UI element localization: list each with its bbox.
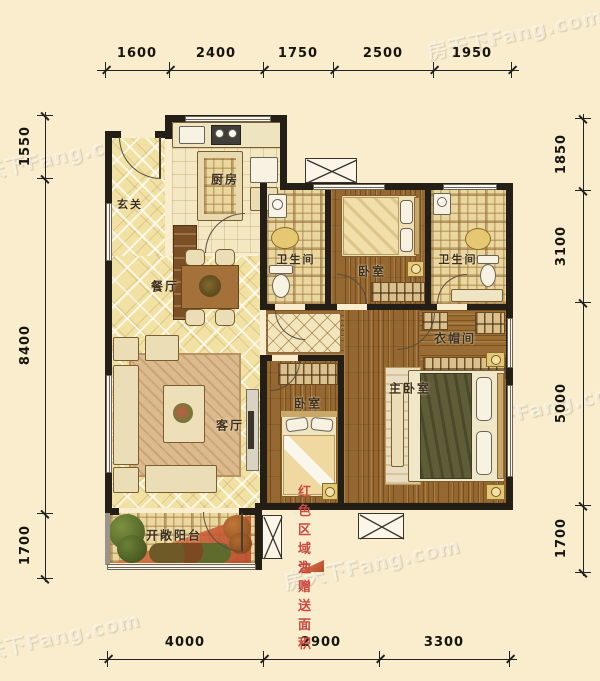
- washer-door: [437, 197, 447, 207]
- window: [106, 203, 112, 261]
- toilet-tank: [477, 255, 499, 264]
- table-centerpiece: [199, 275, 221, 297]
- room-label-living: 客厅: [216, 417, 244, 434]
- dim-label: 1950: [437, 46, 507, 61]
- dim-label: 1750: [263, 46, 333, 61]
- wall-segment: [255, 508, 262, 570]
- tick: [37, 513, 53, 514]
- bed-blanket: [343, 197, 399, 255]
- wall-segment: [260, 357, 267, 503]
- dim-label: 1600: [102, 46, 172, 61]
- room-label-kitchen: 厨房: [211, 171, 239, 188]
- tick: [333, 62, 334, 78]
- tick: [575, 118, 591, 119]
- sofa: [145, 465, 217, 493]
- room-label-balcony: 开敞阳台: [146, 527, 202, 544]
- wall-segment: [260, 183, 267, 310]
- shaft-x-icon: [306, 159, 358, 184]
- balcony-plants: [149, 543, 231, 563]
- sofa: [113, 365, 139, 465]
- wardrobe: [371, 282, 425, 302]
- wall-segment: [255, 503, 513, 510]
- room-label-bath1: 卫生间: [277, 251, 316, 267]
- headboard: [281, 411, 337, 417]
- wall-segment: [338, 355, 344, 505]
- window: [313, 184, 385, 190]
- tick: [433, 62, 434, 78]
- tick: [37, 578, 53, 579]
- tick: [575, 572, 591, 573]
- nightstand: [486, 352, 505, 367]
- toilet: [272, 274, 290, 298]
- wardrobe: [475, 312, 505, 334]
- room-label-bedroom1: 卧室: [358, 263, 386, 280]
- armchair: [113, 337, 139, 361]
- window: [443, 184, 497, 190]
- tick: [509, 651, 510, 667]
- floorplan-page: 房天下Fang.com 房天下Fang.com 房天下Fang.com 房天下F…: [0, 0, 600, 681]
- pillow: [400, 228, 413, 252]
- window: [185, 116, 271, 122]
- window: [507, 318, 513, 368]
- tick: [105, 62, 106, 78]
- dim-label: 1700: [555, 508, 569, 568]
- toilet: [480, 264, 496, 287]
- fridge: [250, 157, 278, 183]
- dim-label: 4000: [150, 635, 220, 650]
- tick: [107, 651, 108, 667]
- headboard: [414, 197, 420, 255]
- bathroom-sink: [271, 227, 299, 249]
- dining-chair: [215, 309, 235, 326]
- tick: [263, 62, 264, 78]
- dresser: [322, 483, 338, 500]
- dim-label: 1700: [19, 515, 33, 575]
- tick: [379, 651, 380, 667]
- room-label-foyer: 玄关: [117, 196, 143, 212]
- pillow: [310, 417, 333, 432]
- dim-label: 2900: [286, 635, 356, 650]
- dim-label: 2400: [181, 46, 251, 61]
- room-label-dining: 餐厅: [151, 278, 179, 295]
- wall-segment: [425, 190, 431, 306]
- dim-label: 2500: [348, 46, 418, 61]
- wall-segment: [260, 304, 275, 310]
- wall-segment: [467, 304, 513, 310]
- nightstand: [407, 261, 424, 277]
- armchair: [113, 467, 139, 493]
- washer-door: [272, 199, 283, 210]
- shaft-x-icon: [359, 514, 405, 540]
- pillow: [476, 431, 492, 475]
- burner: [215, 129, 224, 138]
- dim-label: 5000: [555, 373, 569, 433]
- room-label-bedroom2: 卧室: [294, 395, 322, 412]
- tick: [511, 62, 512, 78]
- wall-segment: [280, 115, 287, 190]
- dim-label: 8400: [19, 315, 33, 375]
- dim-label: 3300: [409, 635, 479, 650]
- tick: [37, 115, 53, 116]
- tick: [263, 651, 264, 667]
- note-text: 红色区域为赠送面积: [298, 481, 313, 652]
- dim-label: 1550: [19, 116, 33, 176]
- room-label-closet: 衣帽间: [434, 330, 476, 347]
- bathroom-sink: [465, 228, 491, 250]
- window: [106, 375, 112, 473]
- duct-shaft: [262, 515, 282, 559]
- dim-label: 1850: [555, 124, 569, 184]
- dining-chair: [185, 309, 205, 326]
- dim-line-top: [97, 70, 519, 71]
- kitchen-sink: [179, 126, 205, 144]
- balcony-railing: [107, 564, 256, 570]
- dim-line-bottom: [99, 659, 517, 660]
- dining-chair: [185, 249, 205, 266]
- burner: [228, 129, 237, 138]
- balcony-wall: [105, 513, 110, 565]
- wall-segment: [325, 190, 331, 306]
- table-flowers: [173, 403, 193, 423]
- tick: [37, 178, 53, 179]
- wall-segment: [305, 304, 337, 310]
- room-label-bath2: 卫生间: [439, 251, 478, 267]
- tick: [169, 62, 170, 78]
- balcony-tree: [117, 535, 147, 563]
- ac-platform: [358, 513, 404, 539]
- nightstand: [486, 484, 505, 500]
- tick: [575, 505, 591, 506]
- pillow: [400, 200, 413, 224]
- shaft-x-icon: [263, 516, 283, 560]
- headboard: [497, 373, 504, 479]
- dim-label: 3100: [555, 216, 569, 276]
- window: [507, 385, 513, 477]
- pillow: [476, 377, 492, 421]
- tick: [575, 190, 591, 191]
- room-label-master: 主卧室: [389, 380, 431, 397]
- armchair: [145, 335, 179, 361]
- tv: [248, 411, 254, 449]
- ac-platform: [305, 158, 357, 183]
- tick: [575, 302, 591, 303]
